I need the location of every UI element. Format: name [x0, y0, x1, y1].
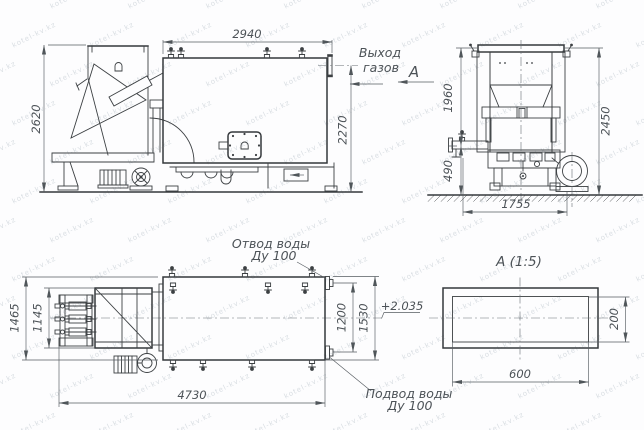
valve-icon [170, 360, 177, 371]
dim-nozzle-spacing: 1200 [333, 283, 357, 352]
section-view-title: А (1:5) [495, 254, 542, 270]
dim-label-section-width: 600 [509, 367, 531, 381]
duct-inner-wall [453, 297, 589, 343]
dim-label-overall-length: 4730 [177, 388, 206, 402]
valve-icon [309, 360, 316, 371]
blower-fan [552, 156, 588, 192]
dim-total-height: 2450 [564, 48, 613, 195]
section-marker-label: А [408, 63, 419, 81]
drive-motor [98, 170, 128, 188]
valve-icon [459, 130, 466, 141]
blower-motor-plan [114, 348, 157, 373]
water-inlet-label-line2: Ду 100 [387, 398, 433, 413]
front-view: 2450 1960 490 1755 [428, 40, 642, 216]
water-inlet-flange [326, 346, 334, 359]
boiler-body-front [449, 40, 589, 207]
dim-label-nozzle-spacing: 1200 [335, 303, 349, 332]
plan-view: 1465 1145 4730 1200 1530 [8, 236, 453, 413]
dim-label-base-width: 1755 [501, 197, 530, 211]
dim-overall-length: 4730 [59, 346, 325, 407]
gas-outlet-callout: Выход газов [350, 45, 401, 84]
hydraulic-cylinder [61, 328, 97, 336]
water-inlet-callout: Подвод воды Ду 100 [330, 358, 453, 414]
hatch-handle [241, 142, 248, 149]
dim-label-nozzle-overall: 1530 [357, 303, 371, 332]
inspection-hatch [219, 132, 261, 159]
chain-sprocket [130, 168, 152, 190]
valve-icon [299, 47, 306, 58]
water-outlet-flange [326, 277, 334, 290]
dim-label-overall-width: 1465 [8, 303, 22, 332]
dim-gas-outlet-height: 2270 [336, 66, 352, 193]
base-frame [490, 168, 560, 190]
hydraulic-cylinder [109, 76, 152, 106]
section-view: А (1:5) 600 200 [429, 254, 630, 387]
valve-icon [242, 266, 249, 277]
dim-label-overall-height: 2620 [29, 104, 43, 133]
hydraulic-cylinder [61, 315, 97, 323]
gas-out-label-line1: Выход [359, 45, 401, 60]
dim-label-base-height: 490 [441, 160, 455, 182]
sight-window [115, 63, 122, 72]
dim-label-body-length: 2940 [232, 27, 261, 41]
valve-icon [302, 283, 309, 294]
drawing-canvas: kotel-kv.kzkotel-kv.kzkotel-kv.kzkotel-k… [0, 0, 644, 430]
fuel-hopper-assembly [52, 46, 194, 190]
gas-out-label-line2: газов [363, 60, 399, 75]
dim-furnace-height: 1960 [441, 48, 477, 146]
ground-hatch [428, 196, 636, 202]
side-view: 2620 2940 2270 Выход газов А [29, 27, 434, 192]
valve-icon [170, 283, 177, 294]
dim-body-length: 2940 [163, 27, 332, 54]
valve-icon [264, 47, 271, 58]
water-outlet-label-line2: Ду 100 [251, 248, 297, 263]
valve-icon [178, 47, 185, 58]
tipping-frame [71, 64, 146, 138]
ash-damper-box [284, 169, 308, 181]
section-cut-marker: А [398, 63, 434, 82]
water-pipe-stub [449, 130, 489, 157]
boiler-body-side [163, 47, 358, 191]
pusher-feeder-assembly [55, 295, 96, 346]
valve-icon [265, 283, 272, 294]
valve-icon [169, 266, 176, 277]
dim-section-height: 200 [589, 297, 630, 342]
elevation-mark-label: +2.035 [381, 299, 424, 313]
valve-icon [200, 360, 207, 371]
valve-icon [168, 47, 175, 58]
dim-label-section-height: 200 [607, 308, 621, 330]
dim-label-total-height: 2450 [599, 106, 613, 135]
dim-label-gas-outlet-height: 2270 [336, 115, 350, 144]
dim-base-height: 490 [441, 146, 461, 195]
feeder-arc [150, 118, 194, 162]
technical-drawing: 2620 2940 2270 Выход газов А [0, 0, 644, 430]
elevation-mark: +2.035 [381, 299, 424, 319]
dim-label-feeder-width: 1145 [31, 303, 45, 332]
dim-label-furnace-height: 1960 [441, 83, 455, 112]
valve-icon [249, 360, 256, 371]
boiler-body-plan [159, 277, 325, 360]
dim-base-width: 1755 [463, 158, 567, 216]
